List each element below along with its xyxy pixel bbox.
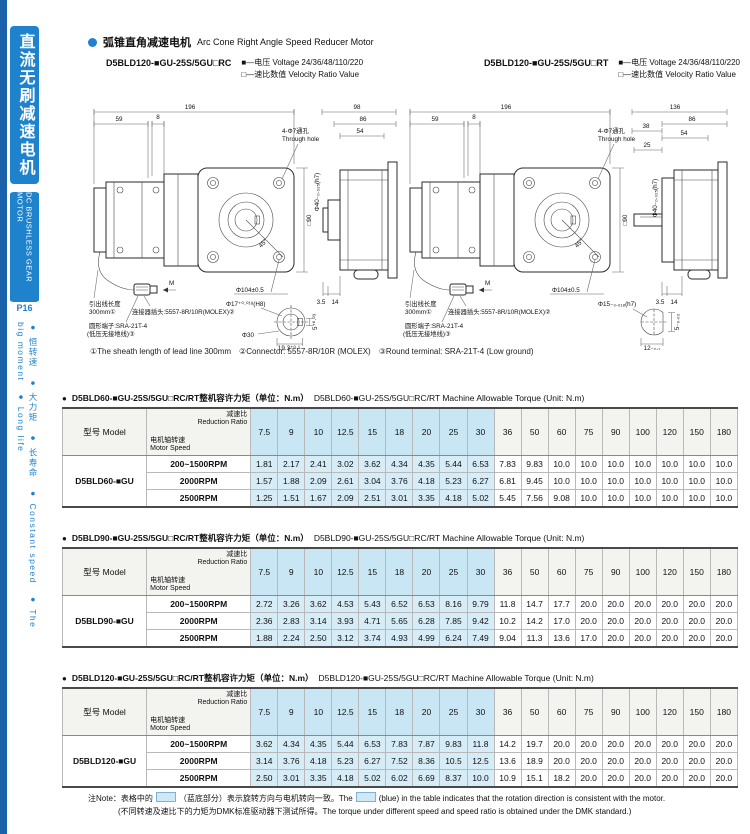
torque-value: 10.0	[467, 770, 494, 788]
drawing-rc-version: 196 59 8 45° □90	[86, 100, 400, 350]
torque-value: 4.18	[305, 753, 332, 770]
torque-value: 10.0	[629, 490, 656, 508]
blue-swatch	[356, 792, 376, 802]
torque-value: 10.0	[575, 473, 602, 490]
torque-value: 14.2	[494, 736, 521, 753]
dim-shaft15: Φ15₋₀.₀₁₈(h7)	[598, 301, 636, 308]
torque-value: 1.88	[251, 630, 278, 648]
torque-value: 10.0	[575, 456, 602, 473]
ratio-header: 12.5	[332, 688, 359, 736]
torque-value: 3.62	[251, 736, 278, 753]
table-row: 2000RPM2.362.833.143.934.715.656.287.859…	[63, 613, 738, 630]
torque-value: 20.0	[575, 770, 602, 788]
torque-value: 4.53	[332, 596, 359, 613]
dim-bore17: Φ17⁺⁰·⁰¹⁸(H8)	[226, 301, 266, 308]
speed-cell: 200~1500RPM	[147, 736, 251, 753]
torque-value: 8.36	[413, 753, 440, 770]
table-title: ● D5BLD120-■GU-25S/5GU□RC/RT整机容许力矩（单位：N.…	[62, 672, 740, 684]
catalog-page: 直流无刷减速电机 DC BRUSHLESS GEAR MOTOR P16 ● 恒…	[0, 0, 750, 834]
torque-value: 7.56	[521, 490, 548, 508]
table-row: 2500RPM2.503.013.354.185.026.026.698.371…	[63, 770, 738, 788]
model-spec-right: D5BLD120-■GU-25S/5GU□RT ■—电压 Voltage 24/…	[484, 57, 740, 82]
torque-value: 2.83	[278, 613, 305, 630]
ratio-header: 90	[602, 688, 629, 736]
ratio-header: 60	[548, 408, 575, 456]
connector-label: 连接器插头:5557-8R/10R(MOLEX)②	[132, 307, 235, 316]
torque-value: 2.50	[305, 630, 332, 648]
dim-boss40: Φ40₋₀.₀₂₅(h7)	[652, 179, 659, 218]
motor-speed-label: 电机轴转速 Motor Speed	[150, 437, 196, 453]
torque-value: 4.99	[413, 630, 440, 648]
torque-value: 6.53	[359, 736, 386, 753]
torque-value: 7.85	[440, 613, 467, 630]
torque-value: 3.01	[278, 770, 305, 788]
torque-value: 20.0	[656, 770, 683, 788]
torque-value: 10.0	[629, 473, 656, 490]
torque-value: 8.37	[440, 770, 467, 788]
ratio-speed-header: 减速比 Reduction Ratio 电机轴转速 Motor Speed	[147, 688, 251, 736]
ratio-header: 120	[656, 408, 683, 456]
torque-value: 4.34	[278, 736, 305, 753]
ratio-header: 10	[305, 548, 332, 596]
ratio-header: 15	[359, 408, 386, 456]
torque-value: 10.0	[683, 473, 710, 490]
torque-value: 2.41	[305, 456, 332, 473]
torque-value: 3.14	[305, 613, 332, 630]
torque-value: 20.0	[710, 630, 737, 648]
ratio-legend: □—速比数值 Velocity Ratio Value	[618, 69, 740, 81]
table-row: 2500RPM1.882.242.503.123.744.934.996.247…	[63, 630, 738, 648]
sidebar-title-cn-text: 直流无刷减速电机	[13, 33, 37, 177]
table-title-en: D5BLD120-■GU-25S/5GU□RC/RT Machine Allow…	[319, 673, 594, 683]
torque-value: 3.12	[332, 630, 359, 648]
lead-length-value: 300mm①	[405, 309, 432, 316]
model-header: 型号 Model	[63, 688, 147, 736]
dim-25: 25	[643, 142, 651, 149]
torque-tables: ● D5BLD60-■GU-25S/5GU□RC/RT整机容许力矩（单位：N.m…	[62, 392, 740, 812]
speed-cell: 2000RPM	[147, 753, 251, 770]
torque-value: 10.0	[656, 490, 683, 508]
torque-value: 20.0	[656, 596, 683, 613]
model-spec-left: D5BLD120-■GU-25S/5GU□RC ■—电压 Voltage 24/…	[106, 57, 363, 82]
dim-square90: □90	[306, 214, 313, 225]
table-title-en: D5BLD60-■GU-25S/5GU□RC/RT Machine Allowa…	[314, 393, 585, 403]
voltage-legend: ■—电压 Voltage 24/36/48/110/220	[618, 57, 740, 69]
ratio-speed-header: 减速比 Reduction Ratio 电机轴转速 Motor Speed	[147, 408, 251, 456]
torque-value: 9.83	[521, 456, 548, 473]
table-bullet-icon: ●	[62, 535, 67, 543]
torque-value: 20.0	[629, 630, 656, 648]
torque-value: 7.83	[494, 456, 521, 473]
torque-value: 20.0	[710, 770, 737, 788]
terminal-label-1: 圆形端子:SRA-21T-4	[405, 321, 464, 330]
section-title-cn: 弧锥直角减速电机	[103, 34, 191, 50]
model-legend-left: ■—电压 Voltage 24/36/48/110/220 □—速比数值 Vel…	[241, 57, 363, 82]
ratio-header: 150	[683, 688, 710, 736]
torque-value: 3.02	[332, 456, 359, 473]
table-title: ● D5BLD60-■GU-25S/5GU□RC/RT整机容许力矩（单位：N.m…	[62, 392, 740, 404]
motor-rear-cap	[94, 188, 106, 252]
torque-value: 20.0	[629, 736, 656, 753]
torque-value: 2.72	[251, 596, 278, 613]
ratio-header: 15	[359, 688, 386, 736]
torque-table-section: ● D5BLD90-■GU-25S/5GU□RC/RT整机容许力矩（单位：N.m…	[62, 532, 740, 648]
motor-body	[106, 182, 164, 258]
torque-value: 20.0	[683, 770, 710, 788]
side-flange	[718, 162, 727, 278]
terminal-label-1: 圆形端子:SRA-21T-4	[89, 321, 148, 330]
ratio-header: 25	[440, 408, 467, 456]
speed-cell: 200~1500RPM	[147, 456, 251, 473]
torque-value: 6.02	[386, 770, 413, 788]
torque-value: 3.62	[359, 456, 386, 473]
torque-value: 20.0	[602, 613, 629, 630]
through-hole-label-cn: 4-Φ7通孔	[282, 126, 309, 135]
torque-value: 10.0	[710, 490, 737, 508]
ratio-header: 90	[602, 408, 629, 456]
ratio-header: 75	[575, 408, 602, 456]
ratio-header: 15	[359, 548, 386, 596]
torque-value: 20.0	[548, 753, 575, 770]
torque-value: 4.35	[305, 736, 332, 753]
motor-body	[422, 182, 480, 258]
torque-value: 13.6	[548, 630, 575, 648]
torque-value: 3.74	[359, 630, 386, 648]
torque-value: 4.93	[386, 630, 413, 648]
torque-value: 11.8	[494, 596, 521, 613]
torque-value: 3.76	[278, 753, 305, 770]
model-cell: D5BLD60-■GU	[63, 456, 147, 508]
torque-value: 3.93	[332, 613, 359, 630]
torque-value: 20.0	[710, 596, 737, 613]
torque-value: 5.02	[359, 770, 386, 788]
dim-86: 86	[688, 116, 696, 123]
gearbox-face	[662, 178, 674, 262]
ratio-header: 9	[278, 688, 305, 736]
dim-54: 54	[680, 130, 688, 137]
ratio-header: 18	[386, 548, 413, 596]
torque-value: 20.0	[656, 736, 683, 753]
torque-value: 2.50	[251, 770, 278, 788]
lead-length-value: 300mm①	[89, 309, 116, 316]
ratio-header: 120	[656, 688, 683, 736]
motor-speed-label: 电机轴转速 Motor Speed	[150, 717, 196, 733]
torque-value: 9.79	[467, 596, 494, 613]
torque-value: 20.0	[602, 596, 629, 613]
gearbox-neck	[480, 174, 514, 266]
gearbox-neck	[164, 174, 198, 266]
torque-value: 10.0	[602, 490, 629, 508]
model-legend-right: ■—电压 Voltage 24/36/48/110/220 □—速比数值 Vel…	[618, 57, 740, 82]
torque-table: 型号 Model 减速比 Reduction Ratio 电机轴转速 Motor…	[62, 687, 738, 788]
torque-value: 20.0	[656, 753, 683, 770]
left-edge-strip	[0, 0, 7, 834]
connector-plug	[134, 284, 150, 295]
torque-value: 5.44	[440, 456, 467, 473]
table-row: 2000RPM1.571.882.092.613.043.764.185.236…	[63, 473, 738, 490]
dim-86: 86	[359, 116, 367, 123]
drawing-rt-version: 196 59 8 45° □90 Φ104±0	[402, 100, 732, 350]
ratio-header: 36	[494, 548, 521, 596]
note-line-1: 注Note：表格中的（蓝底部分）表示旋转方向与电机转向一致。The(blue) …	[88, 792, 665, 806]
dim-59: 59	[115, 116, 123, 123]
ratio-header: 9	[278, 408, 305, 456]
dim-boss40: Φ40₋₀.₀₂₅(h7)	[314, 173, 321, 212]
motor-rear-cap	[410, 188, 422, 252]
ratio-header: 60	[548, 548, 575, 596]
dim-3-5: 3.5	[656, 299, 665, 306]
ratio-header: 12.5	[332, 408, 359, 456]
side-body	[340, 170, 388, 270]
torque-value: 8.16	[440, 596, 467, 613]
ratio-header: 75	[575, 548, 602, 596]
model-cell: D5BLD120-■GU	[63, 736, 147, 788]
sidebar-title-en: DC BRUSHLESS GEAR MOTOR	[10, 190, 39, 304]
torque-value: 14.2	[521, 613, 548, 630]
ratio-header: 60	[548, 688, 575, 736]
torque-value: 9.08	[548, 490, 575, 508]
ratio-header: 50	[521, 548, 548, 596]
torque-value: 20.0	[629, 613, 656, 630]
through-hole-label-en: Through hole	[282, 136, 320, 143]
speed-cell: 2500RPM	[147, 490, 251, 508]
table-row: D5BLD90-■GU200~1500RPM2.723.263.624.535.…	[63, 596, 738, 613]
through-hole-label-en: Through hole	[598, 136, 636, 143]
dim-59: 59	[431, 116, 439, 123]
torque-value: 3.76	[386, 473, 413, 490]
torque-value: 4.35	[413, 456, 440, 473]
speed-cell: 2500RPM	[147, 630, 251, 648]
torque-value: 1.51	[278, 490, 305, 508]
ratio-header: 9	[278, 548, 305, 596]
note-line-2: (不同转速及速比下的力矩为DMK标准驱动器下测试所得。The torque un…	[88, 806, 665, 819]
ratio-header: 25	[440, 548, 467, 596]
torque-value: 6.24	[440, 630, 467, 648]
torque-value: 10.0	[683, 490, 710, 508]
torque-value: 9.04	[494, 630, 521, 648]
torque-value: 7.49	[467, 630, 494, 648]
torque-value: 7.83	[386, 736, 413, 753]
dim-8: 8	[472, 114, 476, 121]
torque-value: 10.0	[548, 473, 575, 490]
ratio-header: 20	[413, 548, 440, 596]
torque-value: 20.0	[575, 596, 602, 613]
speed-cell: 2500RPM	[147, 770, 251, 788]
torque-value: 1.81	[251, 456, 278, 473]
torque-value: 5.23	[440, 473, 467, 490]
torque-value: 3.04	[359, 473, 386, 490]
torque-value: 3.01	[386, 490, 413, 508]
speed-cell: 2000RPM	[147, 473, 251, 490]
dim-key5: 5₋₀.₀₃	[674, 313, 681, 330]
torque-value: 1.67	[305, 490, 332, 508]
ratio-header: 75	[575, 688, 602, 736]
bottom-terminal-bump	[354, 270, 378, 279]
bottom-note: 注Note：表格中的（蓝底部分）表示旋转方向与电机转向一致。The(blue) …	[88, 792, 665, 819]
ratio-header: 150	[683, 548, 710, 596]
dim-14: 14	[670, 299, 678, 306]
torque-value: 4.18	[413, 473, 440, 490]
torque-value: 10.0	[575, 490, 602, 508]
torque-value: 10.5	[440, 753, 467, 770]
table-row: D5BLD120-■GU200~1500RPM3.624.344.355.446…	[63, 736, 738, 753]
side-flange	[388, 162, 397, 278]
table-row: 2000RPM3.143.764.185.236.277.528.3610.51…	[63, 753, 738, 770]
torque-value: 20.0	[602, 753, 629, 770]
ratio-header: 7.5	[251, 548, 278, 596]
dim-outer30: Φ30	[242, 332, 255, 339]
torque-value: 20.0	[575, 753, 602, 770]
sidebar-title-cn: 直流无刷减速电机	[10, 26, 39, 184]
torque-value: 5.23	[332, 753, 359, 770]
ratio-header: 120	[656, 548, 683, 596]
section-bullet-icon	[88, 38, 97, 47]
torque-value: 5.65	[386, 613, 413, 630]
torque-value: 6.28	[413, 613, 440, 630]
torque-value: 10.0	[602, 456, 629, 473]
torque-value: 10.0	[602, 473, 629, 490]
terminal-label-2: (低压无接地线)③	[87, 329, 135, 338]
ratio-header: 150	[683, 408, 710, 456]
ratio-header: 30	[467, 548, 494, 596]
ratio-header: 18	[386, 408, 413, 456]
motor-speed-label: 电机轴转速 Motor Speed	[150, 577, 196, 593]
torque-value: 10.9	[494, 770, 521, 788]
torque-value: 20.0	[710, 736, 737, 753]
torque-table: 型号 Model 减速比 Reduction Ratio 电机轴转速 Motor…	[62, 407, 738, 508]
torque-value: 19.7	[521, 736, 548, 753]
torque-value: 12.5	[467, 753, 494, 770]
torque-value: 2.36	[251, 613, 278, 630]
side-body	[674, 170, 718, 270]
note-text-b: （蓝底部分）表示旋转方向与电机转向一致。The	[179, 794, 353, 803]
dim-key5: 5⁺⁰·⁰³	[312, 314, 319, 330]
ratio-header: 36	[494, 408, 521, 456]
torque-value: 3.35	[413, 490, 440, 508]
model-cell: D5BLD90-■GU	[63, 596, 147, 648]
lead-length-label-cn: 引出线长度	[405, 299, 437, 308]
connector-label: 连接器插头:5557-8R/10R(MOLEX)②	[448, 307, 551, 316]
ratio-header: 50	[521, 688, 548, 736]
torque-table: 型号 Model 减速比 Reduction Ratio 电机轴转速 Motor…	[62, 547, 738, 648]
torque-value: 3.14	[251, 753, 278, 770]
speed-cell: 200~1500RPM	[147, 596, 251, 613]
torque-value: 20.0	[683, 736, 710, 753]
torque-value: 1.57	[251, 473, 278, 490]
drawing-footnotes: ①The sheath length of lead line 300mm ②C…	[90, 346, 534, 357]
torque-value: 10.0	[683, 456, 710, 473]
table-title: ● D5BLD90-■GU-25S/5GU□RC/RT整机容许力矩（单位：N.m…	[62, 532, 740, 544]
torque-value: 10.0	[710, 456, 737, 473]
table-title-cn: D5BLD60-■GU-25S/5GU□RC/RT整机容许力矩（单位：N.m）	[72, 392, 309, 404]
ratio-header: 18	[386, 688, 413, 736]
model-header: 型号 Model	[63, 408, 147, 456]
torque-value: 20.0	[629, 596, 656, 613]
ratio-header: 10	[305, 408, 332, 456]
dim-M: M	[485, 280, 490, 287]
blue-swatch	[156, 792, 176, 802]
torque-value: 4.34	[386, 456, 413, 473]
torque-value: 20.0	[602, 770, 629, 788]
torque-value: 6.53	[467, 456, 494, 473]
ratio-header: 180	[710, 408, 737, 456]
torque-value: 3.35	[305, 770, 332, 788]
torque-value: 18.2	[548, 770, 575, 788]
torque-value: 20.0	[683, 596, 710, 613]
torque-value: 5.44	[332, 736, 359, 753]
torque-value: 4.18	[440, 490, 467, 508]
technical-drawings: 196 59 8 45° □90	[86, 100, 732, 350]
torque-value: 2.51	[359, 490, 386, 508]
table-bullet-icon: ●	[62, 395, 67, 403]
sidebar-features: ● 恒转速 ● 大力矩 ● 长寿命 ● Constant speed ● The…	[15, 322, 39, 632]
dim-3-5: 3.5	[317, 299, 326, 306]
torque-value: 20.0	[656, 613, 683, 630]
torque-value: 1.88	[278, 473, 305, 490]
torque-value: 20.0	[602, 630, 629, 648]
section-title-en: Arc Cone Right Angle Speed Reducer Motor	[197, 37, 374, 47]
torque-value: 20.0	[629, 753, 656, 770]
ratio-header: 50	[521, 408, 548, 456]
torque-value: 2.09	[332, 490, 359, 508]
ratio-header: 7.5	[251, 408, 278, 456]
torque-value: 20.0	[683, 753, 710, 770]
torque-value: 6.27	[359, 753, 386, 770]
torque-value: 4.18	[332, 770, 359, 788]
dim-flat12: 12₋₀.₁	[644, 345, 661, 350]
table-row: 2500RPM1.251.511.672.092.513.013.354.185…	[63, 490, 738, 508]
ratio-legend: □—速比数值 Velocity Ratio Value	[241, 69, 363, 81]
torque-value: 3.62	[305, 596, 332, 613]
torque-value: 13.6	[494, 753, 521, 770]
dim-38: 38	[642, 123, 650, 130]
torque-value: 9.83	[440, 736, 467, 753]
torque-table-section: ● D5BLD120-■GU-25S/5GU□RC/RT整机容许力矩（单位：N.…	[62, 672, 740, 788]
model-designations: D5BLD120-■GU-25S/5GU□RC ■—电压 Voltage 24/…	[106, 57, 740, 82]
reduction-ratio-label: 减速比 Reduction Ratio	[195, 411, 247, 427]
torque-value: 6.53	[413, 596, 440, 613]
ratio-header: 100	[629, 548, 656, 596]
ratio-header: 36	[494, 688, 521, 736]
torque-value: 20.0	[548, 736, 575, 753]
torque-value: 6.52	[386, 596, 413, 613]
model-code-rt: D5BLD120-■GU-25S/5GU□RT	[484, 57, 608, 68]
model-code-rc: D5BLD120-■GU-25S/5GU□RC	[106, 57, 231, 68]
ratio-header: 100	[629, 688, 656, 736]
torque-value: 10.0	[629, 456, 656, 473]
dim-54: 54	[356, 128, 364, 135]
torque-value: 20.0	[710, 753, 737, 770]
ratio-header: 180	[710, 688, 737, 736]
ratio-header: 30	[467, 688, 494, 736]
ratio-header: 100	[629, 408, 656, 456]
reduction-ratio-label: 减速比 Reduction Ratio	[195, 691, 247, 707]
dim-98: 98	[353, 104, 361, 111]
torque-value: 17.0	[548, 613, 575, 630]
model-header: 型号 Model	[63, 548, 147, 596]
connector-plug	[450, 284, 466, 295]
table-title-en: D5BLD90-■GU-25S/5GU□RC/RT Machine Allowa…	[314, 533, 585, 543]
torque-value: 20.0	[629, 770, 656, 788]
torque-value: 5.45	[494, 490, 521, 508]
table-title-cn: D5BLD120-■GU-25S/5GU□RC/RT整机容许力矩（单位：N.m）	[72, 672, 314, 684]
torque-value: 11.8	[467, 736, 494, 753]
dim-136: 136	[670, 104, 681, 111]
torque-value: 6.27	[467, 473, 494, 490]
sidebar-page-number: P16	[10, 303, 39, 313]
torque-value: 10.0	[656, 473, 683, 490]
torque-value: 9.42	[467, 613, 494, 630]
